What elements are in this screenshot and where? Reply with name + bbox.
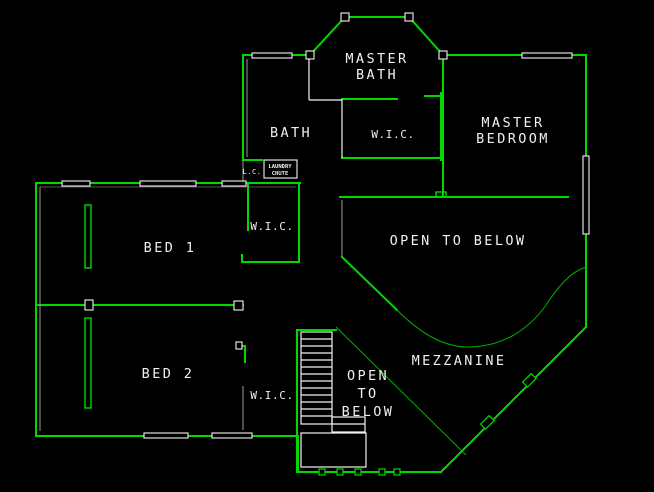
- room-label-open-lower-line2: TO: [357, 386, 378, 402]
- wall-diagonal: [441, 327, 586, 472]
- bay-corner-3: [306, 51, 314, 59]
- room-label-master-bath-line1: MASTER: [345, 51, 408, 67]
- stair-treads: [301, 339, 332, 416]
- room-label-open-to-below-upper: OPEN TO BELOW: [390, 233, 527, 249]
- bed1-closet-wall-upper: [85, 205, 91, 268]
- bottom-wall-mark-2: [337, 469, 343, 475]
- balcony-curve: [397, 267, 586, 347]
- cad-canvas: MASTER BATH BATH W.I.C. MASTER BEDROOM O…: [0, 0, 654, 492]
- room-label-master-bedroom-line1: MASTER: [481, 115, 544, 131]
- room-label-master-bath-line2: BATH: [356, 67, 398, 83]
- bay-corner-4: [439, 51, 447, 59]
- bottom-wall-mark-4: [379, 469, 385, 475]
- room-label-bed2-wic: W.I.C.: [250, 389, 293, 402]
- window-bath-top: [252, 53, 292, 58]
- room-label-bed-2: BED 2: [142, 366, 195, 382]
- wall-otb-diagonal: [342, 257, 397, 310]
- bay-window-walls: [310, 17, 443, 55]
- stair-rail-diagonal: [336, 327, 466, 455]
- room-label-open-lower-line3: BELOW: [342, 404, 395, 420]
- window-master-top: [522, 53, 572, 58]
- stair-landing-lower: [301, 433, 366, 467]
- window-diagonal-1: [481, 416, 494, 429]
- wall-masterbath-bath: [309, 57, 342, 100]
- room-label-bath: BATH: [270, 125, 312, 141]
- window-bed2-bottom-2: [212, 433, 252, 438]
- bed1-closet-wall-lower: [85, 318, 91, 408]
- room-label-laundry-chute-line2: CHUTE: [272, 171, 289, 177]
- room-label-master-bedroom-line2: BEDROOM: [476, 131, 550, 147]
- window-right-wall: [583, 156, 589, 234]
- wall-bed1-wic-bottom: [242, 255, 299, 262]
- window-bed1-top-3: [222, 181, 246, 186]
- bottom-wall-mark-1: [319, 469, 325, 475]
- room-label-master-wic: W.I.C.: [371, 128, 414, 141]
- window-bed1-top-2: [140, 181, 196, 186]
- bottom-wall-mark-5: [394, 469, 400, 475]
- room-label-open-lower-line1: OPEN: [347, 368, 389, 384]
- window-bed1-top-1: [62, 181, 90, 186]
- floor-plan-drawing: MASTER BATH BATH W.I.C. MASTER BEDROOM O…: [0, 0, 654, 492]
- bay-corner-2: [405, 13, 413, 21]
- window-bed2-bottom-1: [144, 433, 188, 438]
- staircase: [301, 332, 366, 467]
- room-label-linen-closet: L.C.: [243, 168, 262, 176]
- room-label-laundry-chute-line1: LAUNDRY: [268, 164, 292, 170]
- room-label-bed-1: BED 1: [144, 240, 197, 256]
- room-label-bed1-wic: W.I.C.: [250, 220, 293, 233]
- bed1-closet-door-tick: [85, 300, 93, 310]
- room-labels: MASTER BATH BATH W.I.C. MASTER BEDROOM O…: [142, 51, 550, 420]
- divider-end-cap: [234, 301, 243, 310]
- bay-corner-1: [341, 13, 349, 21]
- room-label-mezzanine: MEZZANINE: [412, 353, 507, 369]
- bed2-wic-door-tick: [236, 342, 242, 349]
- bottom-wall-mark-3: [355, 469, 361, 475]
- window-diagonal-2: [523, 374, 536, 387]
